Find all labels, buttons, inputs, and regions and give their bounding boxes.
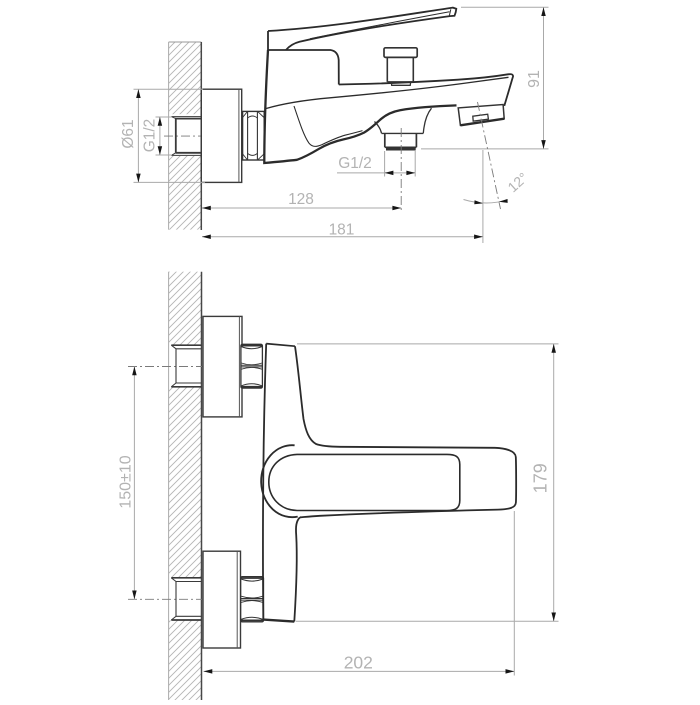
svg-text:G1/2: G1/2	[142, 119, 159, 153]
svg-text:128: 128	[288, 191, 314, 208]
svg-text:Ø61: Ø61	[120, 119, 137, 148]
svg-text:181: 181	[329, 222, 355, 239]
svg-text:91: 91	[526, 70, 543, 88]
svg-text:202: 202	[344, 653, 373, 673]
svg-text:12°: 12°	[504, 169, 530, 195]
svg-text:G1/2: G1/2	[338, 155, 372, 172]
svg-text:179: 179	[531, 463, 551, 493]
svg-text:150±10: 150±10	[118, 455, 135, 508]
